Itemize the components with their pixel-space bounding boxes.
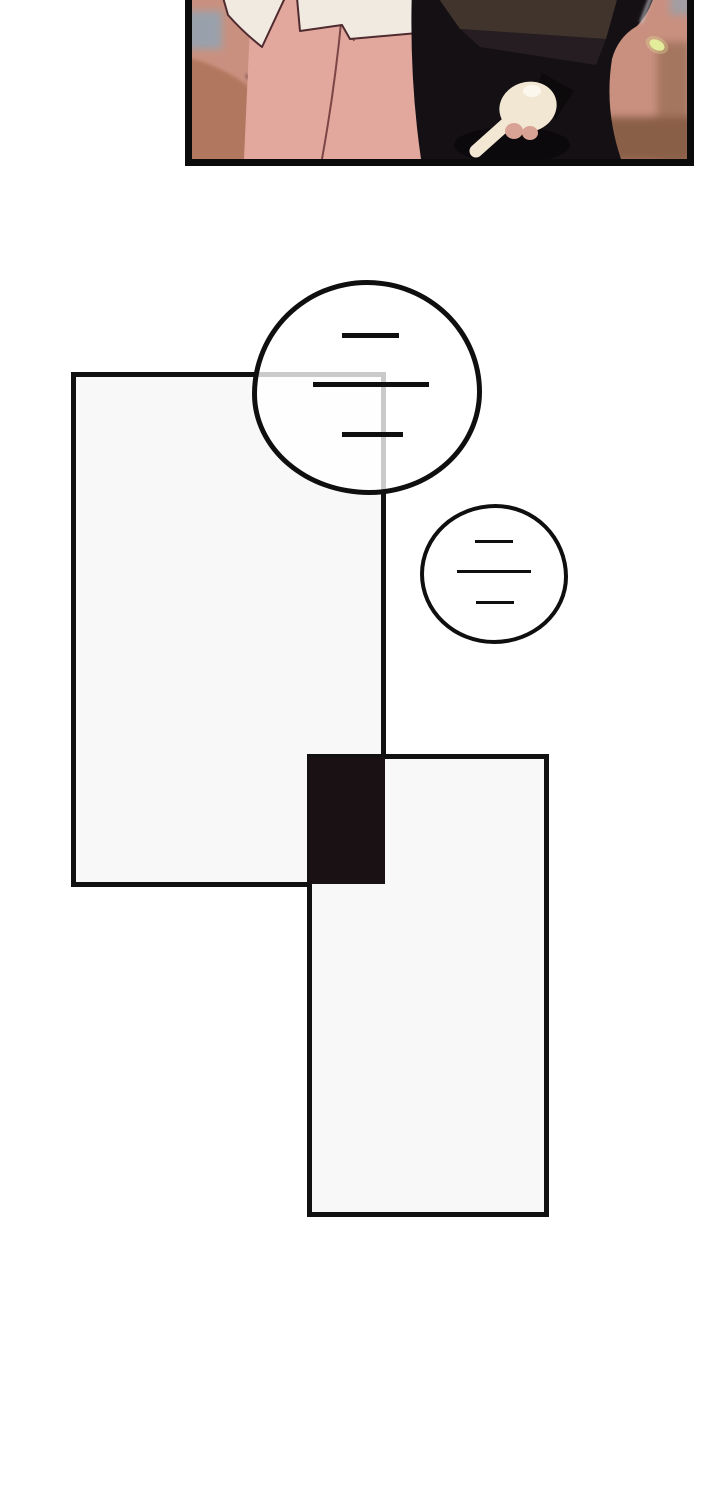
window-blur-shape-right [670,0,687,15]
hand-knuckle [505,123,523,139]
photo-panel [185,0,694,166]
hand-highlight [523,85,541,97]
window-blur-shape [192,11,222,49]
speech-line [476,601,514,604]
panel-overlap-shade [309,757,385,884]
speech-line [457,570,531,573]
speech-line [342,432,403,437]
speech-line [313,382,429,387]
speech-line [342,333,399,338]
photo-illustration [192,0,687,159]
speech-bubble-small [420,504,568,644]
speech-bubble-large [252,280,482,495]
hand-knuckle-2 [522,126,538,140]
speech-line [475,540,513,543]
